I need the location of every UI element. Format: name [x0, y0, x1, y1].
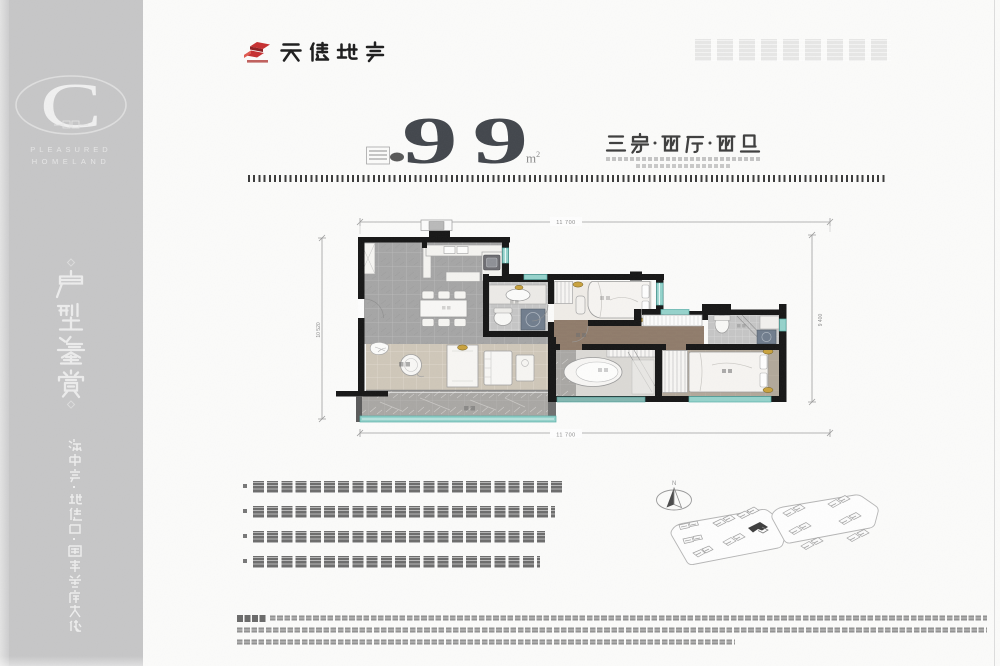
svg-text:10 520: 10 520 [316, 322, 322, 338]
svg-text:11 700: 11 700 [556, 220, 575, 226]
svg-text:11 700: 11 700 [556, 433, 575, 439]
svg-text:HOMELAND: HOMELAND [32, 157, 111, 166]
svg-text:PLEASURED: PLEASURED [30, 145, 111, 154]
svg-text:9 400: 9 400 [818, 314, 824, 327]
svg-text:C: C [40, 71, 102, 142]
svg-text:N: N [672, 481, 676, 487]
